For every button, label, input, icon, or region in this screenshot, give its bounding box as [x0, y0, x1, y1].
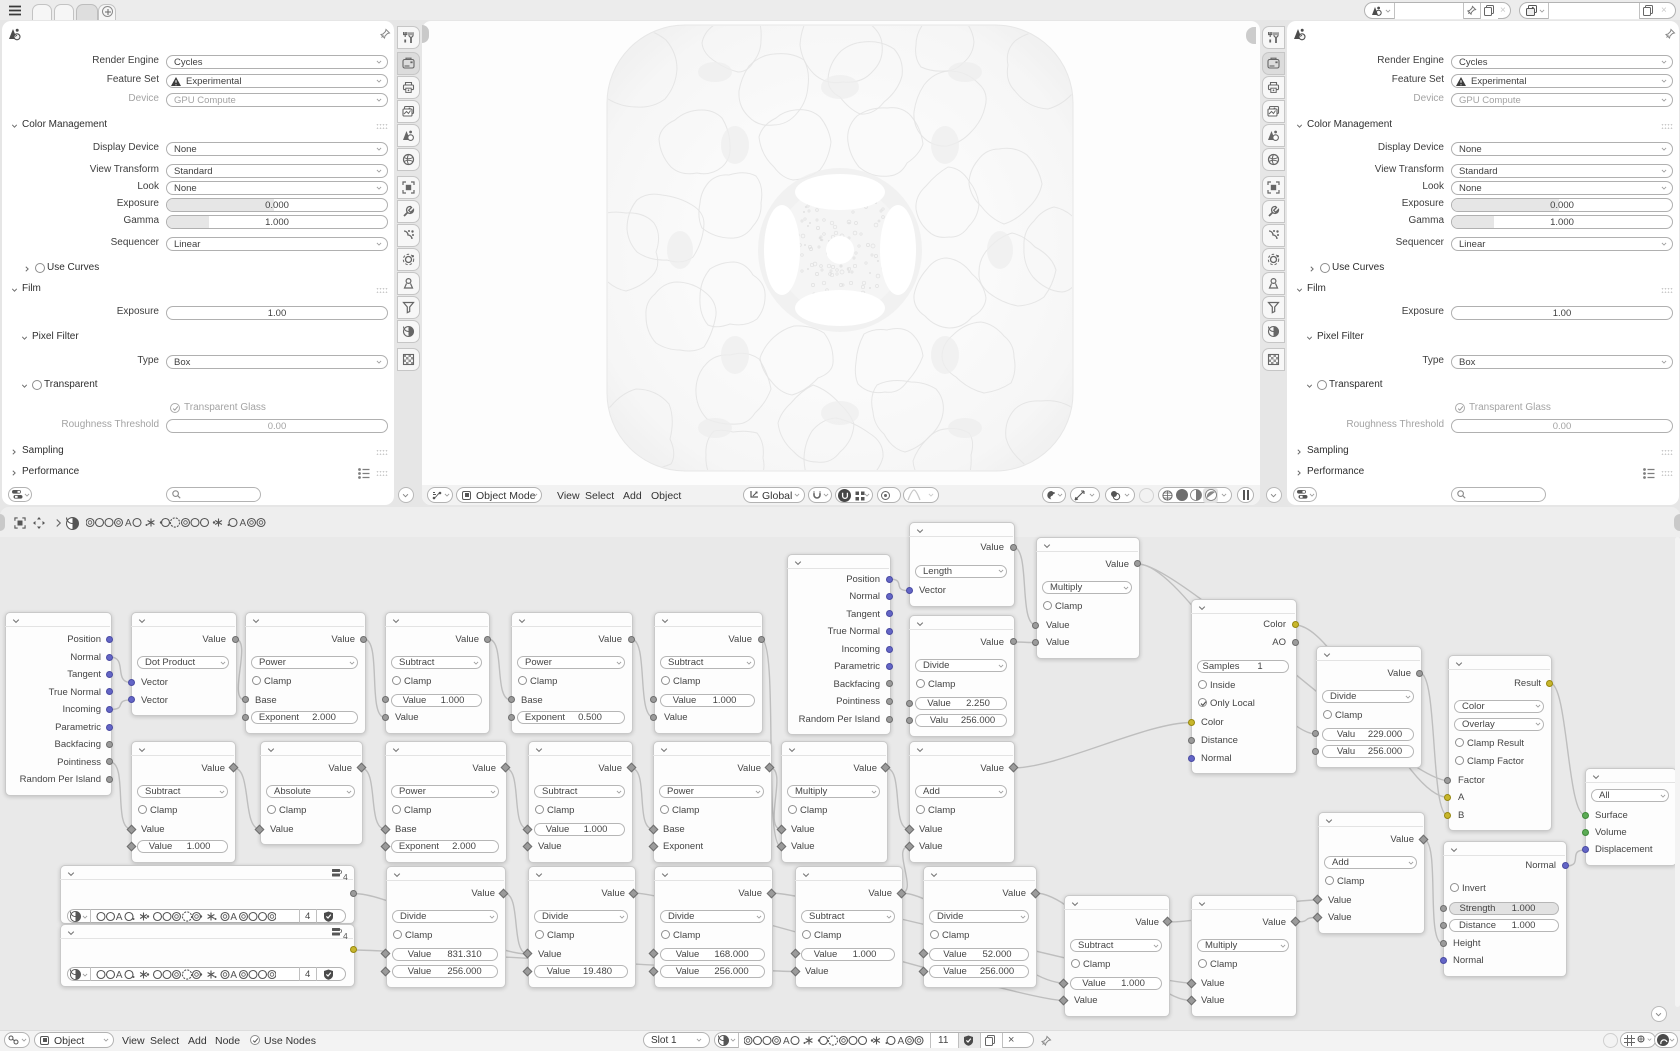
svg-text:A: A — [783, 1036, 790, 1046]
svg-text:A: A — [898, 1036, 905, 1046]
svg-text:A: A — [230, 912, 237, 922]
svg-text:A: A — [116, 970, 123, 980]
svg-text:A: A — [116, 912, 123, 922]
svg-text:A: A — [230, 970, 237, 980]
